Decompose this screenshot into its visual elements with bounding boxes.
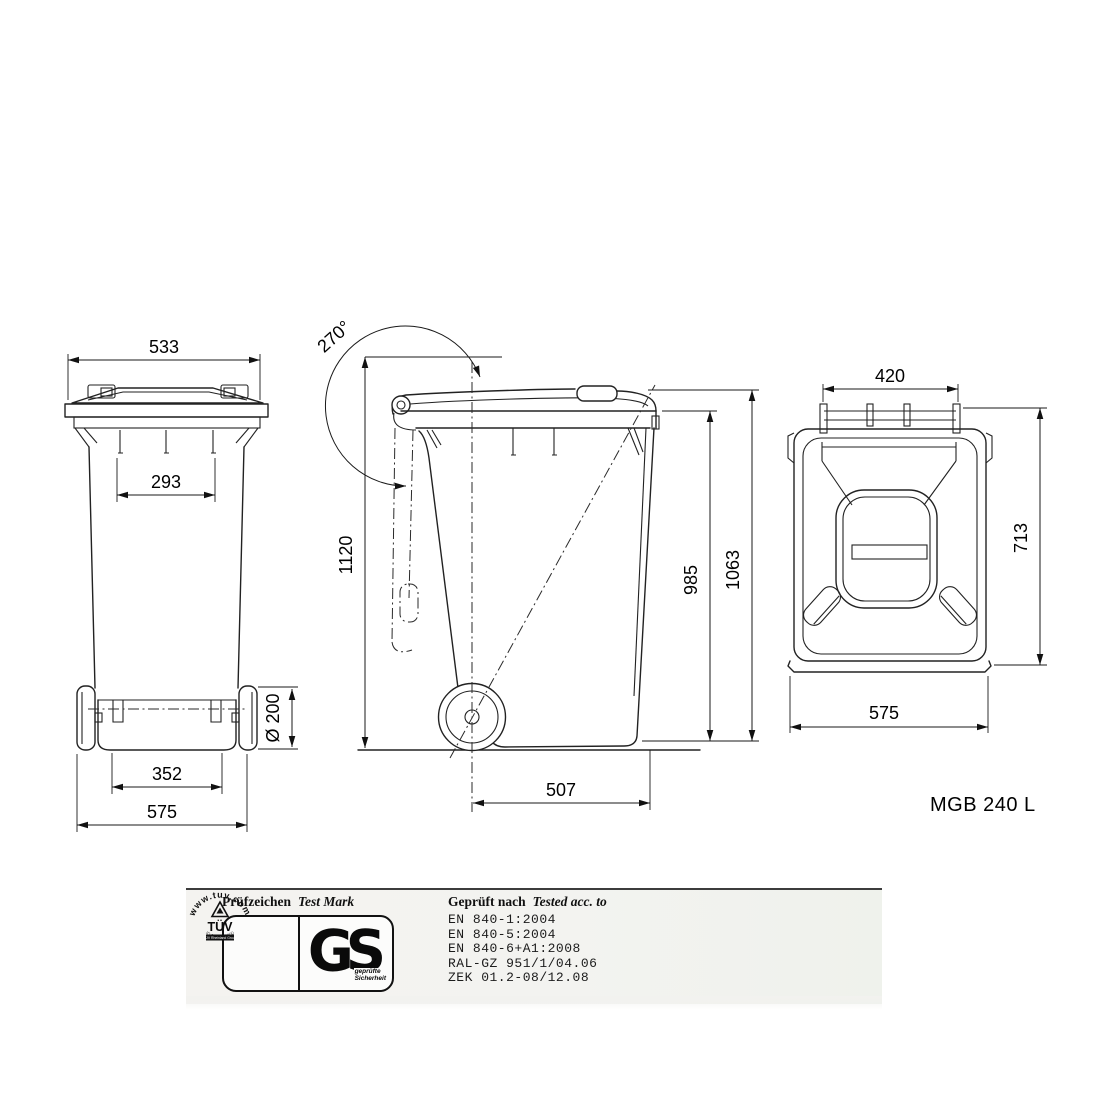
dim-axle-to-front: 507 bbox=[473, 750, 650, 810]
wheel-right bbox=[239, 686, 257, 750]
front-view bbox=[65, 385, 268, 750]
dim-label-575-top: 575 bbox=[869, 703, 899, 723]
dim-front-inner-width: 293 bbox=[117, 458, 215, 502]
tuv-name-text: TÜV bbox=[222, 919, 233, 934]
dim-handle-width: 420 bbox=[823, 366, 958, 402]
header-geprueft-nach: Geprüft nach bbox=[448, 894, 526, 909]
gs-caption-line1: geprüfte bbox=[355, 968, 386, 975]
top-base-plate bbox=[788, 661, 991, 672]
header-tested-acc-to: Tested acc. to bbox=[533, 894, 607, 909]
dim-top-overall-width: 575 bbox=[790, 676, 988, 733]
wheel-left bbox=[77, 686, 95, 750]
dim-wheel-diameter: Ø 200 bbox=[258, 687, 298, 749]
dim-label-533: 533 bbox=[149, 337, 179, 357]
certification-right-column: Geprüft nachTested acc. to EN 840-1:2004… bbox=[434, 890, 607, 1004]
gs-caption: geprüfte Sicherheit bbox=[354, 968, 387, 982]
standard-ral-gz: RAL-GZ 951/1/04.06 bbox=[448, 957, 607, 972]
dim-label-1063: 1063 bbox=[723, 550, 743, 590]
dim-label-352: 352 bbox=[152, 764, 182, 784]
dim-label-713: 713 bbox=[1011, 523, 1031, 553]
dim-label-1120: 1120 bbox=[336, 536, 356, 575]
dim-label-507: 507 bbox=[546, 780, 576, 800]
dim-top-depth: 713 bbox=[963, 408, 1047, 665]
tuv-triangle-icon bbox=[222, 915, 228, 917]
dim-wheel-track: 352 bbox=[112, 753, 222, 794]
dim-label-985: 985 bbox=[681, 565, 701, 595]
standard-en-840-5: EN 840-5:2004 bbox=[448, 928, 607, 943]
side-lid bbox=[392, 389, 575, 414]
certification-strip: PrüfzeichenTest Mark www.tuv.com ID 1000… bbox=[186, 888, 882, 1004]
gs-logo: GS geprüfte Sicherheit bbox=[300, 917, 392, 990]
standard-zek: ZEK 01.2-08/12.08 bbox=[448, 971, 607, 986]
certification-left-column: PrüfzeichenTest Mark www.tuv.com ID 1000… bbox=[186, 890, 434, 1004]
chassis bbox=[98, 700, 236, 750]
tuv-logo-icon: www.tuv.com ID 1000000000 TÜV TÜV Rheinl… bbox=[222, 915, 254, 958]
side-view bbox=[358, 362, 700, 812]
side-front-edge bbox=[491, 428, 654, 747]
header-test-mark: Test Mark bbox=[298, 894, 354, 909]
dim-rim-height: 985 bbox=[662, 411, 717, 741]
product-label: MGB 240 L bbox=[930, 794, 1036, 816]
dim-label-293: 293 bbox=[151, 472, 181, 492]
dim-label-575-front: 575 bbox=[147, 802, 177, 822]
standard-en-840-6: EN 840-6+A1:2008 bbox=[448, 942, 607, 957]
tuv-logo: www.tuv.com ID 1000000000 TÜV TÜV Rheinl… bbox=[224, 917, 300, 990]
tuv-gs-badge: www.tuv.com ID 1000000000 TÜV TÜV Rheinl… bbox=[222, 915, 394, 992]
wheel-housing-left bbox=[800, 583, 844, 629]
tilt-centerline bbox=[450, 385, 655, 758]
dim-label-420: 420 bbox=[875, 366, 905, 386]
top-lid-panel bbox=[836, 490, 937, 608]
standards-list: EN 840-1:2004 EN 840-5:2004 EN 840-6+A1:… bbox=[448, 913, 607, 986]
side-back-edge bbox=[419, 431, 466, 701]
tested-acc-header: Geprüft nachTested acc. to bbox=[448, 894, 607, 910]
tuv-sub-text: TÜV Rheinland Group bbox=[222, 936, 237, 940]
dim-label-dia200: Ø 200 bbox=[263, 693, 283, 742]
top-view bbox=[788, 404, 992, 672]
dimensions: 533 293 Ø 200 352 575 bbox=[68, 317, 1047, 832]
dim-front-top-width: 533 bbox=[68, 337, 260, 400]
technical-drawing-page: 533 293 Ø 200 352 575 bbox=[0, 0, 1100, 1100]
lid-handle-slot bbox=[577, 386, 617, 401]
front-rim bbox=[65, 404, 268, 417]
lid-grip-recess bbox=[852, 545, 927, 559]
wheel-housing-right bbox=[936, 583, 980, 629]
standard-en-840-1: EN 840-1:2004 bbox=[448, 913, 607, 928]
front-body-right-edge bbox=[238, 447, 244, 688]
open-lid-phantom bbox=[392, 428, 418, 652]
front-body-left-edge bbox=[89, 447, 95, 688]
gs-caption-line2: Sicherheit bbox=[355, 975, 386, 982]
